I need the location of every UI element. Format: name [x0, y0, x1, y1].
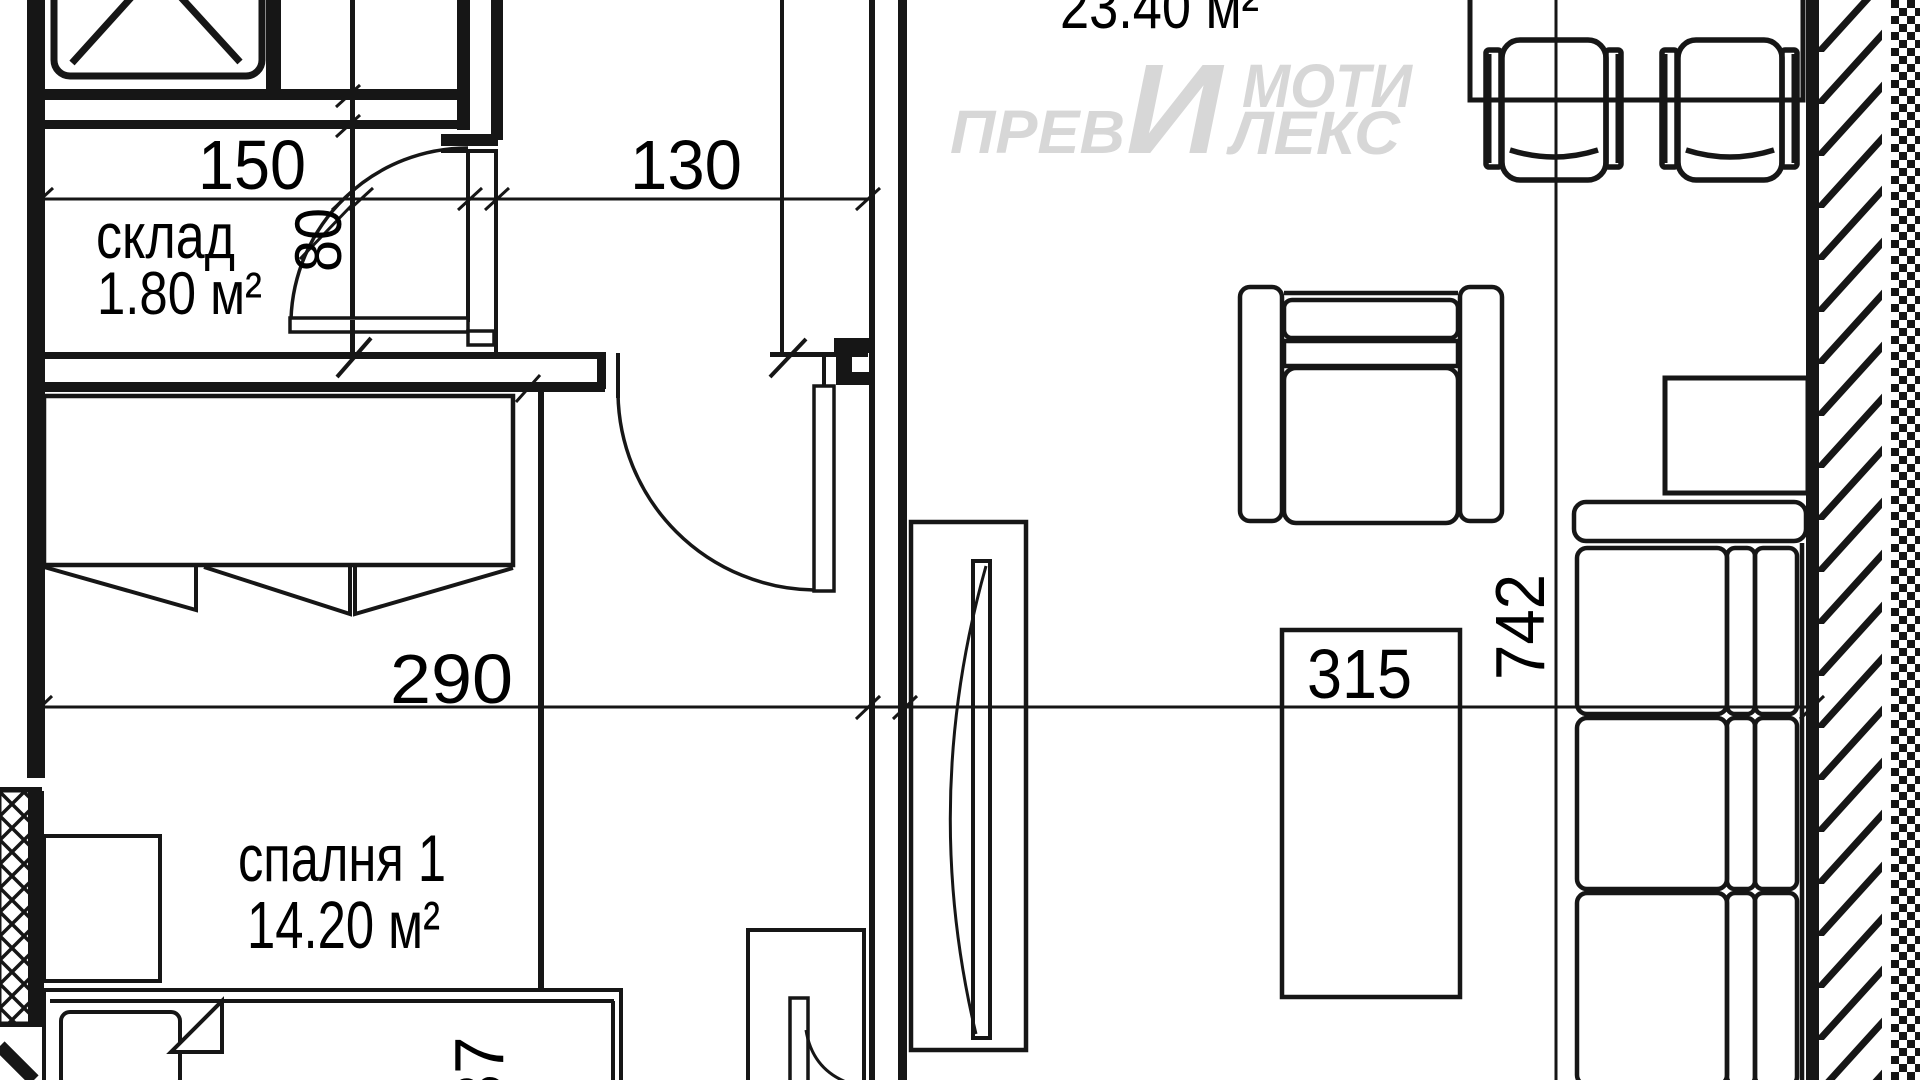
svg-text:ПРЕВ: ПРЕВ	[950, 98, 1125, 166]
svg-text:290: 290	[390, 640, 513, 718]
svg-text:1.80 м²: 1.80 м²	[97, 260, 262, 327]
svg-text:315: 315	[1307, 635, 1412, 713]
svg-text:150: 150	[198, 126, 306, 204]
svg-text:14.20 м²: 14.20 м²	[247, 888, 440, 963]
svg-text:23.40 м²: 23.40 м²	[1060, 0, 1259, 42]
svg-text:80: 80	[281, 208, 355, 272]
svg-text:742: 742	[1481, 574, 1559, 680]
svg-text:ЛЕКС: ЛЕКС	[1226, 99, 1401, 167]
svg-text:И: И	[1126, 38, 1225, 181]
svg-text:37: 37	[440, 1037, 518, 1080]
svg-text:130: 130	[630, 126, 742, 204]
svg-text:спалня 1: спалня 1	[238, 821, 446, 895]
